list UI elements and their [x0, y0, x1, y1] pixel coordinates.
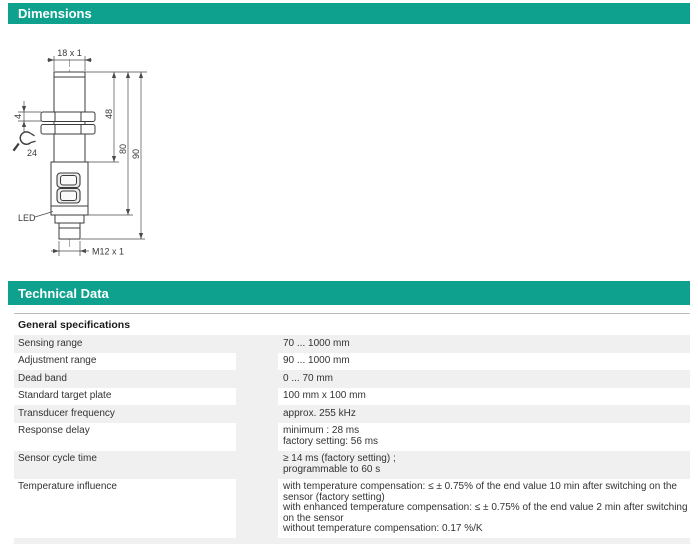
dimension-80: 80	[88, 72, 133, 215]
connector-neck	[55, 215, 84, 223]
dim-90-label: 90	[131, 149, 141, 159]
dimension-connector: M12 x 1	[51, 241, 124, 257]
dimension-90: 90	[81, 72, 145, 239]
spec-label: Dead band	[14, 370, 236, 388]
dim-80-label: 80	[118, 144, 128, 154]
led-window-upper	[57, 173, 80, 188]
spec-label: Sensing range	[14, 335, 236, 353]
technical-data-title: Technical Data	[18, 286, 109, 301]
spec-label: Sensor cycle time	[14, 451, 236, 479]
dim-48-label: 48	[104, 109, 114, 119]
spec-value: approx. 255 kHz	[278, 405, 690, 423]
group-header-general-specifications: General specifications	[14, 313, 690, 335]
spec-value: 0 ... 70 mm	[278, 370, 690, 388]
spec-spacer	[236, 370, 278, 388]
spec-label: Transducer frequency	[14, 405, 236, 423]
hex-nut-upper	[41, 112, 95, 122]
table-row: Standard target plate 100 mm x 100 mm	[14, 388, 690, 406]
thread-size-label: 18 x 1	[57, 48, 82, 58]
table-row: Adjustment range 90 ... 1000 mm	[14, 353, 690, 371]
spec-label: Standard target plate	[14, 388, 236, 406]
led-callout: LED	[18, 212, 53, 224]
dimension-drawing-area: 18 x 1 4 24 48	[7, 38, 698, 262]
spec-spacer	[236, 405, 278, 423]
dimensions-section-banner: Dimensions	[8, 3, 690, 24]
dimension-nut-thickness: 4	[13, 101, 41, 132]
spec-value: ≥ 14 ms (factory setting) ; programmable…	[278, 451, 690, 479]
spec-label: Temperature influence	[14, 479, 236, 539]
dimensions-title: Dimensions	[18, 6, 92, 21]
technical-data-section-banner: Technical Data	[8, 281, 690, 305]
spec-value: 100 mm x 100 mm	[278, 388, 690, 406]
table-row: Dead band 0 ... 70 mm	[14, 370, 690, 388]
spec-value: 70 ... 1000 mm	[278, 335, 690, 353]
spec-label: Adjustment range	[14, 353, 236, 371]
table-row: Response delay minimum : 28 ms factory s…	[14, 423, 690, 451]
spec-spacer	[236, 423, 278, 451]
hex-nut-lower	[41, 125, 95, 135]
spec-spacer	[236, 335, 278, 353]
table-row: Temperature influence with temperature c…	[14, 479, 690, 539]
spec-value: with temperature compensation: ≤ ± 0.75%…	[278, 479, 690, 539]
table-row-partial	[14, 538, 690, 544]
spec-spacer	[236, 388, 278, 406]
connector-size-label: M12 x 1	[92, 247, 124, 257]
technical-data-table: General specifications Sensing range 70 …	[14, 313, 690, 544]
sensor-top-cap	[54, 72, 85, 77]
spec-spacer	[236, 451, 278, 479]
m12-plug	[59, 223, 80, 239]
table-row: Sensing range 70 ... 1000 mm	[14, 335, 690, 353]
sensor-dimension-drawing: 18 x 1 4 24 48	[7, 38, 243, 262]
led-label: LED	[18, 213, 36, 223]
spec-spacer	[236, 353, 278, 371]
spec-spacer	[236, 479, 278, 539]
led-window-lower	[57, 189, 80, 204]
spec-value: minimum : 28 ms factory setting: 56 ms	[278, 423, 690, 451]
nut-thickness-label: 4	[13, 114, 23, 119]
spec-value: 90 ... 1000 mm	[278, 353, 690, 371]
table-row: Transducer frequency approx. 255 kHz	[14, 405, 690, 423]
wrench-size-label: 24	[27, 148, 37, 158]
table-row: Sensor cycle time ≥ 14 ms (factory setti…	[14, 451, 690, 479]
spec-label: Response delay	[14, 423, 236, 451]
